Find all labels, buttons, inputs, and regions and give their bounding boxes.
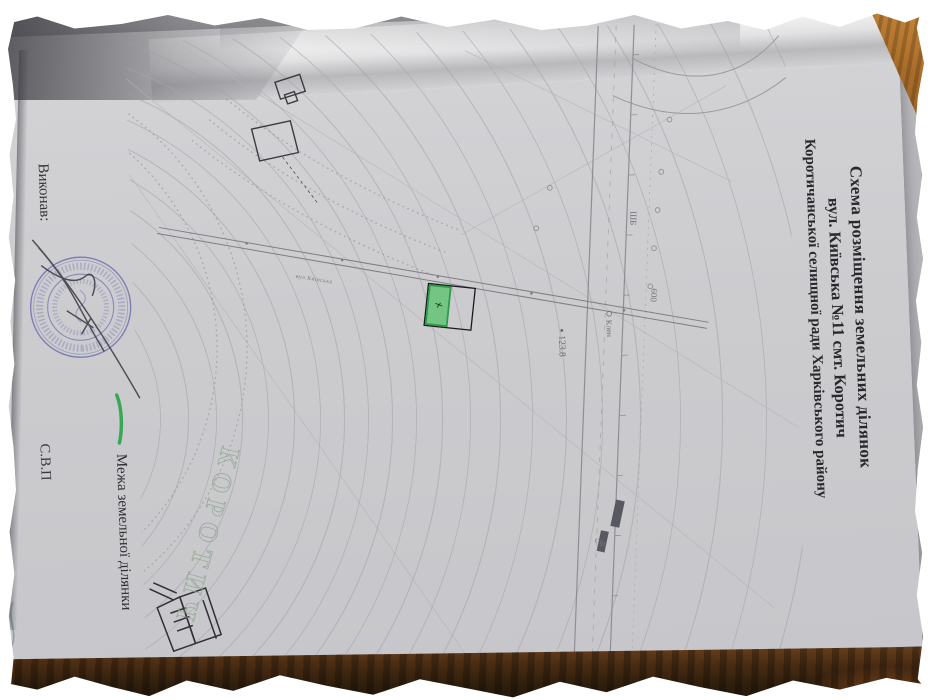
contour-lines-bold (124, 19, 806, 672)
elevation-point (560, 329, 563, 332)
road-surface-label: ШБ (628, 211, 638, 226)
document-title: Схема розміщення земельних ділянок вул. … (794, 27, 882, 609)
outlined-buildings (250, 74, 318, 206)
contour-lines (124, 19, 806, 672)
legend: Межа земельної ділянки (110, 393, 135, 611)
tree-label: Клен (604, 320, 614, 338)
round-seal-stamp (26, 222, 163, 416)
executor-initials: С.В.П (35, 443, 53, 481)
seal-rings (29, 255, 132, 358)
elevation-label: 123.8 (556, 335, 567, 357)
legend-label: Межа земельної ділянки (112, 454, 134, 611)
parcel-boundary-line-sample (112, 393, 127, 445)
highlighted-parcel (424, 284, 475, 331)
executor-label: Виконав: (34, 163, 53, 222)
distance-label: 600 (649, 288, 660, 303)
land-scheme-document: Схема розміщення земельних ділянок вул. … (27, 16, 906, 676)
signature-strokes (32, 236, 140, 401)
main-road (552, 24, 678, 657)
survey-lines (124, 19, 806, 672)
hachure-lines (124, 39, 474, 651)
topographic-map: ШБ Клен 123.8 600 вул.Київська сар КОРОТ… (124, 19, 806, 672)
photo-of-document: Схема розміщення земельних ділянок вул. … (0, 0, 933, 700)
settlement-name-outline: КОРОТИЧ (169, 444, 246, 631)
